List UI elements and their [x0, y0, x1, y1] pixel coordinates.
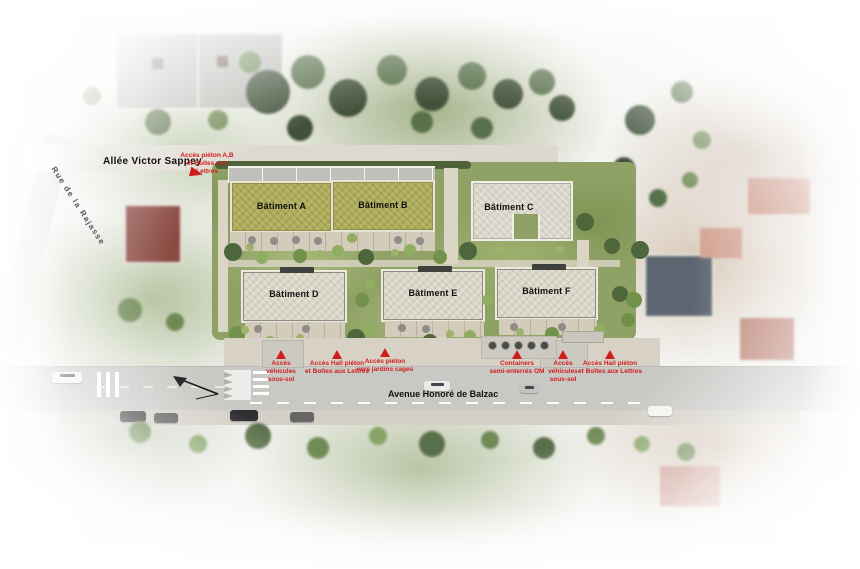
- waste-container: [514, 341, 523, 350]
- waste-container: [540, 341, 549, 350]
- access-arrow-up-icon: [512, 350, 522, 359]
- building-c-courtyard: [512, 214, 540, 239]
- building-a-label: Bâtiment A: [232, 201, 331, 211]
- waste-container: [488, 341, 497, 350]
- terraces-d: [245, 322, 345, 338]
- access-arrow-up-icon: [276, 350, 286, 359]
- access-arrow-up-icon: [380, 348, 390, 357]
- terraces-e: [385, 321, 484, 337]
- building-d-label: Bâtiment D: [243, 289, 345, 299]
- access-arrow-up-icon: [558, 350, 568, 359]
- annotation-access-pieton-ab: Accès piéton A,B et Boîtes aux Lettres: [177, 152, 237, 176]
- waste-container: [501, 341, 510, 350]
- roof-equipment: [532, 264, 566, 270]
- annotation-acces-hall-2: Accès Hall piéton et Boîtes aux Lettres: [574, 350, 646, 376]
- site-plan: Allée Victor Sappey Rue de la Rajasse Av…: [0, 0, 860, 569]
- street-label-avenue-honore-de-balzac: Avenue Honoré de Balzac: [388, 389, 498, 399]
- north-roof-strip: [228, 166, 435, 183]
- bike-shed: [562, 331, 604, 343]
- roof-equipment: [280, 267, 314, 273]
- annotation-acces-pieton-jardins: Accès piéton vers jardins cages: [351, 348, 419, 374]
- building-f-label: Bâtiment F: [497, 286, 596, 296]
- building-e-label: Bâtiment E: [383, 288, 483, 298]
- terraces-ab: [230, 232, 435, 251]
- access-arrow-up-icon: [605, 350, 615, 359]
- access-arrow-up-icon: [332, 350, 342, 359]
- annotation-acces-vehicules-1: Accès véhicules sous-sol: [256, 350, 306, 384]
- footpath: [218, 180, 228, 332]
- building-b-label: Bâtiment B: [333, 200, 433, 210]
- roof-equipment: [418, 266, 452, 272]
- footpath: [444, 168, 458, 264]
- waste-container: [527, 341, 536, 350]
- building-c-label: Bâtiment C: [473, 202, 545, 212]
